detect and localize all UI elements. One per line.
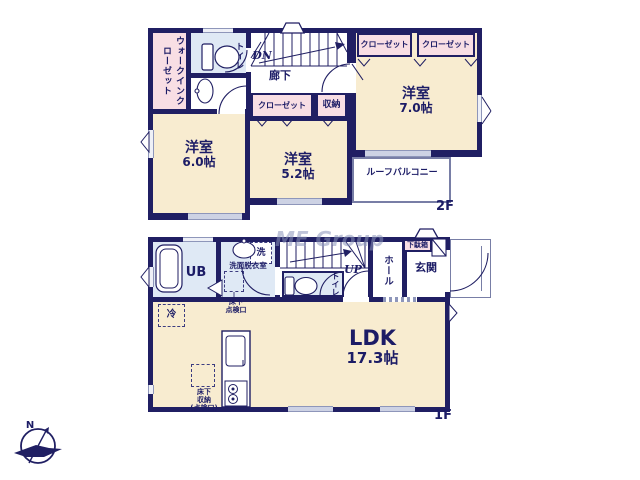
dn-label: DN: [250, 50, 274, 63]
washbasin-nook-2f: [191, 78, 246, 109]
bedroom6-size: 6.0帖: [161, 156, 237, 170]
window-1f-top: [183, 237, 213, 242]
underfloor-hatch-box: [224, 271, 244, 292]
window-1f-left1: [148, 267, 154, 287]
opening-hall-ldk: [383, 297, 417, 302]
bedroom5-label: 洋室 5.2帖: [260, 152, 336, 182]
underfloor-hatch-label: 床下 点検口: [218, 298, 254, 314]
corridor-label: 廊下: [258, 70, 302, 83]
roof-balcony: [352, 157, 451, 203]
compass-icon: [14, 427, 62, 463]
closet-2f-right1: クローゼット: [357, 33, 412, 57]
bedroom7-name: 洋室: [378, 86, 454, 102]
window-bedroom6-bottom: [188, 213, 242, 220]
cutout-2f: [250, 205, 352, 220]
closet-2f-right2: クローゼット: [417, 33, 475, 57]
door-opening-washroom: [275, 267, 280, 295]
storage-2f-label: 収納: [322, 100, 340, 110]
watermark: ME Group: [275, 227, 384, 251]
closet-2f-right1-label: クローゼット: [361, 40, 409, 49]
window-bedroom6-left: [148, 130, 154, 158]
bedroom6-label: 洋室 6.0帖: [161, 140, 237, 170]
door-opening-bedroom7: [347, 63, 356, 93]
closet-2f-center-label: クローゼット: [258, 101, 306, 110]
up-label: UP: [341, 264, 365, 277]
room-stairs-corridor-2f: [251, 33, 347, 93]
window-balcony-slider: [365, 150, 431, 157]
hall-label: ホール: [379, 247, 394, 295]
walkin-closet-label: ウォークインクローゼット: [155, 35, 186, 107]
window-1f-left2: [148, 385, 154, 394]
underfloor-storage-box: [191, 364, 215, 387]
underfloor-storage-label: 床下 収納 (点検口): [184, 388, 224, 412]
door-opening-corridor-ldk: [343, 297, 369, 302]
toilet-2f-label: トイレ: [232, 38, 245, 74]
roof-balcony-label: ルーフバルコニー: [356, 168, 448, 178]
floorplan-canvas: クローゼット 収納 クローゼット クローゼット ルーフバルコニー ウォークインク…: [0, 0, 640, 480]
shoe-box-label: 下駄箱: [407, 241, 428, 249]
toilet-1f-label: トイレ: [329, 272, 341, 296]
entrance-porch: [450, 239, 491, 298]
bedroom5-size: 5.2帖: [260, 168, 336, 182]
ldk-label: LDK 17.3帖: [330, 326, 415, 367]
window-ldk-bottom2: [380, 406, 415, 412]
washroom-label: 洗面脱衣室: [219, 262, 277, 271]
floor-label-1f: 1F: [428, 409, 458, 424]
storage-2f: 収納: [316, 93, 347, 118]
entrance-label: 玄関: [405, 262, 447, 275]
door-opening-bedroom6: [217, 109, 245, 114]
fridge-label: 冷: [167, 310, 177, 321]
closet-2f-center: クローゼット: [251, 93, 313, 118]
bedroom7-size: 7.0帖: [378, 102, 454, 116]
ub-label: UB: [176, 266, 216, 281]
compass-north-label: N: [23, 420, 37, 432]
window-bedroom7-right: [477, 95, 482, 122]
ldk-name: LDK: [330, 326, 415, 350]
window-2f-top: [203, 28, 233, 33]
shoe-box: 下駄箱: [403, 239, 432, 252]
bedroom5-name: 洋室: [260, 152, 336, 168]
ldk-size: 17.3帖: [330, 350, 415, 367]
bedroom7-label: 洋室 7.0帖: [378, 86, 454, 116]
window-ldk-bottom1: [288, 406, 333, 412]
porch-step-line: [481, 246, 482, 291]
window-bedroom5-bottom: [277, 198, 322, 205]
closet-2f-right2-label: クローゼット: [422, 40, 470, 49]
laundry-label: 洗: [256, 248, 265, 258]
fridge-box: 冷: [158, 304, 185, 327]
bedroom6-name: 洋室: [161, 140, 237, 156]
floor-label-2f: 2F: [430, 200, 460, 215]
